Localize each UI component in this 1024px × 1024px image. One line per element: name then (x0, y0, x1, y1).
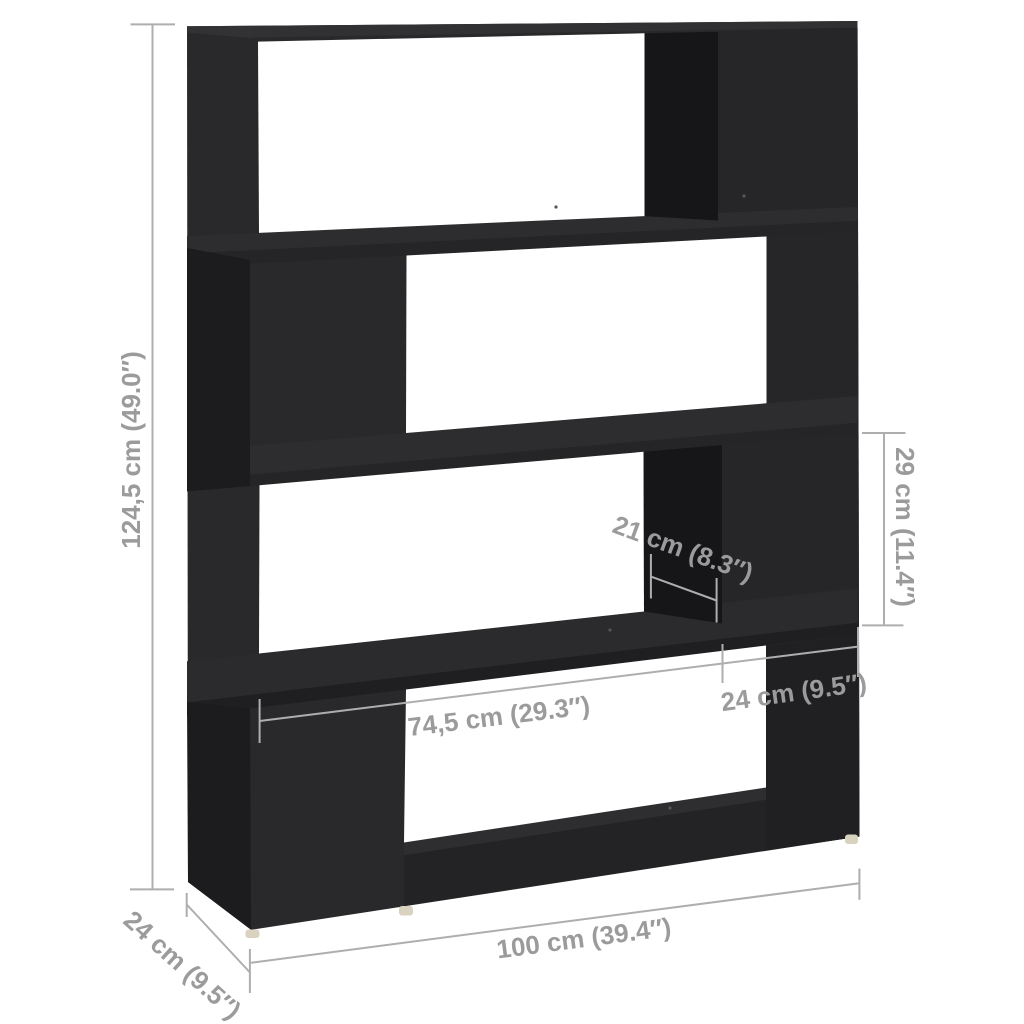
svg-text:24 cm (9.5″): 24 cm (9.5″) (118, 905, 247, 1024)
svg-text:124,5 cm (49.0″): 124,5 cm (49.0″) (116, 351, 146, 548)
svg-text:29 cm (11.4″): 29 cm (11.4″) (890, 447, 920, 607)
